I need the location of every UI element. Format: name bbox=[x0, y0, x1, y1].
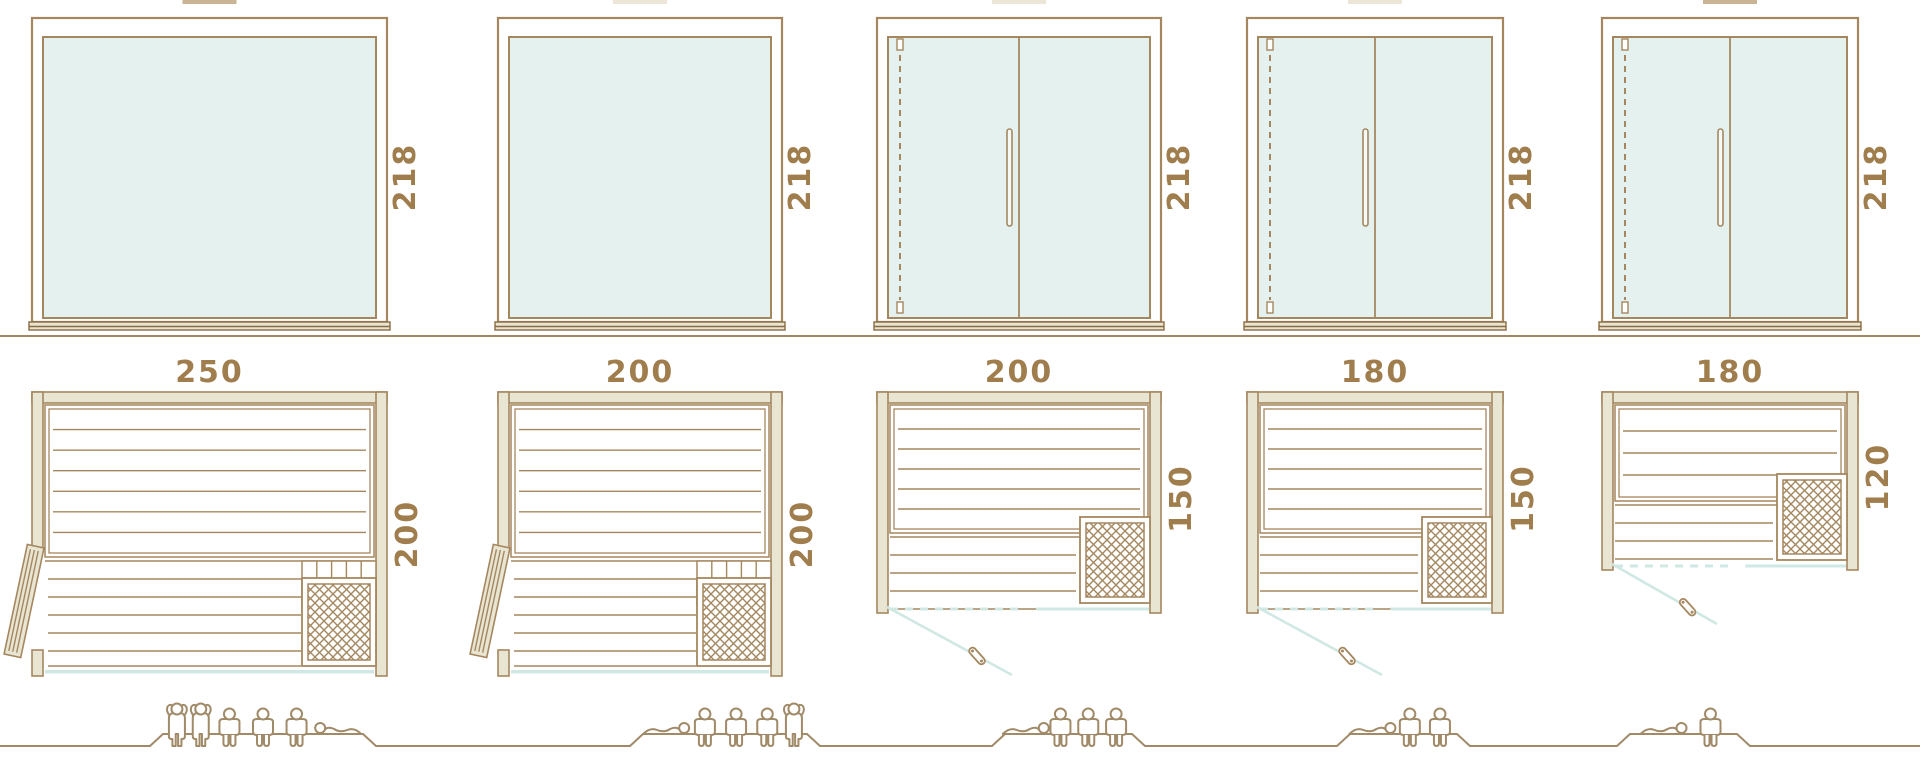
cropped-top-mark bbox=[1703, 0, 1757, 4]
glass-panel bbox=[509, 37, 771, 318]
width-dimension-label: 200 bbox=[606, 355, 675, 390]
height-dimension-label: 218 bbox=[388, 143, 423, 212]
door-swing-line bbox=[1257, 607, 1382, 675]
heater-icon bbox=[1422, 517, 1492, 603]
person-sitting-icon bbox=[1050, 709, 1070, 747]
cabin-wall bbox=[1150, 392, 1161, 613]
capacity-group-cabin-200x200 bbox=[643, 704, 804, 747]
capacity-group-cabin-200x150 bbox=[1003, 709, 1126, 747]
door-hinge-icon bbox=[1622, 39, 1628, 50]
cabin-wall bbox=[1602, 392, 1613, 570]
cabin-wall bbox=[498, 392, 509, 548]
door-swing-line bbox=[887, 607, 1012, 675]
capacity-group-cabin-250x200 bbox=[167, 704, 361, 747]
person-standing-icon bbox=[191, 704, 211, 747]
depth-dimension-label: 150 bbox=[1506, 464, 1541, 533]
width-dimension-label: 180 bbox=[1696, 355, 1765, 390]
depth-dimension-label: 120 bbox=[1861, 443, 1896, 512]
floor-plan-cabin-200x150: 200150 bbox=[877, 355, 1199, 675]
depth-dimension-label: 200 bbox=[390, 500, 425, 569]
height-dimension-label: 218 bbox=[1859, 143, 1894, 212]
cabin-wall bbox=[771, 392, 782, 676]
front-elevation-cabin-180x150: 218 bbox=[1244, 0, 1539, 330]
width-dimension-label: 180 bbox=[1341, 355, 1410, 390]
floor-plan-cabin-180x120: 180120 bbox=[1602, 355, 1896, 624]
person-sitting-icon bbox=[695, 709, 715, 747]
door-handle-icon bbox=[1338, 646, 1356, 665]
person-lying-icon bbox=[643, 723, 689, 734]
cabin-wall bbox=[498, 650, 509, 676]
person-sitting-icon bbox=[1078, 709, 1098, 747]
sauna-size-diagram-page: 2182502002182002002182001502181801502181… bbox=[0, 0, 1920, 770]
cabin-wall bbox=[877, 392, 888, 613]
front-elevation-cabin-180x120: 218 bbox=[1599, 0, 1894, 330]
person-sitting-icon bbox=[253, 709, 273, 747]
width-dimension-label: 250 bbox=[175, 355, 244, 390]
height-dimension-label: 218 bbox=[783, 143, 818, 212]
heater-icon bbox=[1080, 517, 1150, 603]
cabin-wall bbox=[877, 392, 1161, 403]
person-sitting-icon bbox=[1106, 709, 1126, 747]
floor-plan-cabin-180x150: 180150 bbox=[1247, 355, 1541, 675]
glass-front-line bbox=[45, 670, 374, 674]
open-door-leaf bbox=[4, 544, 44, 657]
capacity-ground-line bbox=[0, 734, 1920, 746]
cropped-top-mark bbox=[1348, 0, 1402, 4]
cropped-top-mark bbox=[992, 0, 1046, 4]
cabin-wall bbox=[32, 650, 43, 676]
sauna-sizes-diagram: 2182502002182002002182001502181801502181… bbox=[0, 0, 1920, 770]
person-sitting-icon bbox=[1400, 709, 1420, 747]
height-dimension-label: 218 bbox=[1162, 143, 1197, 212]
cabin-wall bbox=[1602, 392, 1858, 403]
cabin-wall bbox=[1247, 392, 1258, 613]
heater-icon bbox=[697, 578, 771, 666]
door-hinge-icon bbox=[897, 39, 903, 50]
door-handle-icon bbox=[968, 646, 986, 665]
cropped-top-mark bbox=[613, 0, 667, 4]
person-sitting-icon bbox=[1430, 709, 1450, 747]
capacity-group-cabin-180x120 bbox=[1641, 709, 1721, 747]
person-sitting-icon bbox=[1701, 709, 1721, 747]
glass-front-line bbox=[511, 670, 769, 674]
front-elevation-cabin-250x200: 218 bbox=[29, 0, 423, 330]
upper-bench bbox=[511, 405, 769, 557]
person-sitting-icon bbox=[219, 709, 239, 747]
door-swing-line bbox=[1612, 564, 1717, 624]
person-sitting-icon bbox=[287, 709, 307, 747]
cabin-wall bbox=[32, 392, 43, 548]
person-lying-icon bbox=[1641, 723, 1687, 734]
door-handle-icon bbox=[1007, 129, 1012, 226]
upper-bench bbox=[45, 405, 374, 557]
cabin-wall bbox=[498, 392, 782, 403]
person-lying-icon bbox=[315, 723, 361, 734]
height-dimension-label: 218 bbox=[1504, 143, 1539, 212]
door-handle-icon bbox=[1718, 129, 1723, 226]
cabin-wall bbox=[1247, 392, 1503, 403]
capacity-group-cabin-180x150 bbox=[1349, 709, 1450, 747]
cabin-wall bbox=[1847, 392, 1858, 570]
cabin-wall bbox=[32, 392, 387, 403]
person-sitting-icon bbox=[757, 709, 777, 747]
glass-panel bbox=[43, 37, 376, 318]
open-door-leaf bbox=[470, 544, 510, 657]
floor-plan-cabin-200x200: 200200 bbox=[470, 355, 820, 676]
front-elevation-cabin-200x150: 218 bbox=[874, 0, 1197, 330]
door-hinge-icon bbox=[1622, 302, 1628, 313]
width-dimension-label: 200 bbox=[985, 355, 1054, 390]
person-sitting-icon bbox=[726, 709, 746, 747]
depth-dimension-label: 200 bbox=[785, 500, 820, 569]
cabin-wall bbox=[1492, 392, 1503, 613]
door-hinge-icon bbox=[897, 302, 903, 313]
person-lying-icon bbox=[1003, 723, 1049, 734]
cabin-wall bbox=[376, 392, 387, 676]
cropped-top-mark bbox=[183, 0, 237, 4]
front-elevation-cabin-200x200: 218 bbox=[495, 0, 818, 330]
door-handle-icon bbox=[1363, 129, 1368, 226]
door-hinge-icon bbox=[1267, 39, 1273, 50]
depth-dimension-label: 150 bbox=[1164, 464, 1199, 533]
floor-plan-cabin-250x200: 250200 bbox=[4, 355, 425, 676]
person-lying-icon bbox=[1349, 723, 1395, 734]
person-standing-icon bbox=[784, 704, 804, 747]
door-hinge-icon bbox=[1267, 302, 1273, 313]
heater-icon bbox=[1777, 474, 1847, 560]
door-handle-icon bbox=[1678, 597, 1696, 616]
person-standing-icon bbox=[167, 704, 187, 747]
heater-icon bbox=[302, 578, 376, 666]
